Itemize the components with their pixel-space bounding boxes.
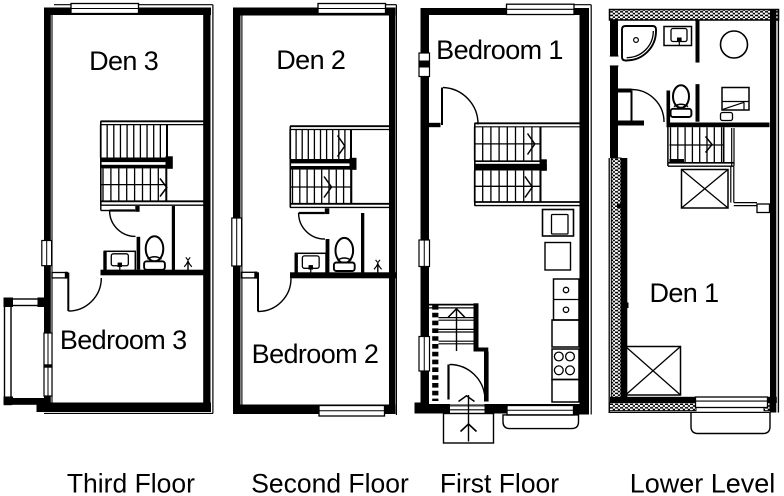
svg-text:Den 1: Den 1: [649, 278, 718, 308]
svg-text:Den 2: Den 2: [276, 45, 345, 75]
svg-text:Bedroom 1: Bedroom 1: [436, 35, 563, 65]
svg-text:Bedroom 2: Bedroom 2: [252, 339, 379, 369]
svg-text:First Floor: First Floor: [440, 469, 559, 496]
svg-text:Bedroom 3: Bedroom 3: [60, 325, 187, 355]
svg-text:Lower Level: Lower Level: [630, 469, 776, 496]
svg-text:Den 3: Den 3: [89, 46, 158, 76]
svg-text:Second Floor: Second Floor: [251, 469, 409, 496]
svg-text:Third Floor: Third Floor: [67, 469, 195, 496]
